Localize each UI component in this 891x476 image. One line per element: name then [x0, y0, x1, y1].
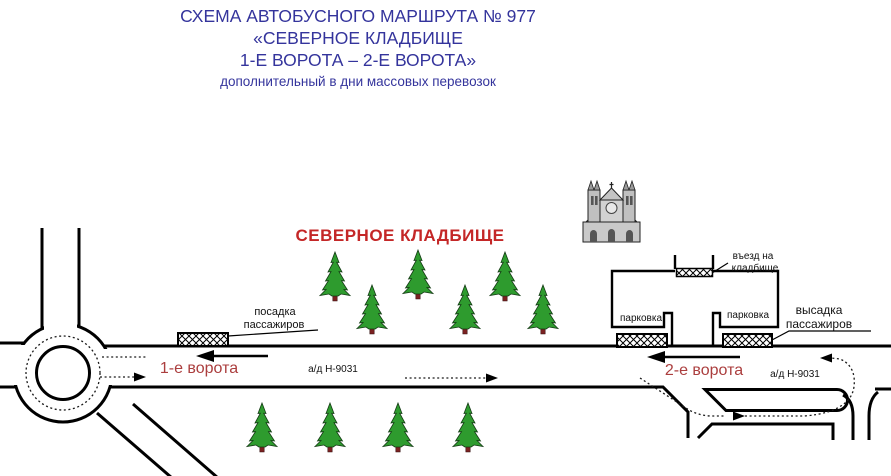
- parking-right-label: парковка: [727, 310, 769, 321]
- boarding-label-line2: пассажиров: [244, 319, 305, 331]
- cemetery-entrance-hatch: [677, 269, 713, 277]
- gate2-arrow-head: [647, 351, 665, 363]
- alighting-platform: [723, 334, 772, 347]
- roundabout-inner-circle: [37, 347, 90, 400]
- cathedral-icon: [583, 181, 640, 242]
- route-arrow-left: [820, 354, 832, 363]
- route-uturn-segment: [745, 358, 854, 416]
- fir-tree-icon: [383, 403, 413, 452]
- gate-posts: [675, 255, 713, 269]
- parking-left-label: парковка: [620, 313, 662, 324]
- alighting-leader-line: [772, 331, 871, 340]
- bus-route-scheme: СХЕМА АВТОБУСНОГО МАРШРУТА № 977 «СЕВЕРН…: [0, 0, 891, 476]
- fir-tree-icon: [247, 403, 277, 452]
- route-arrow-right-2: [486, 374, 498, 383]
- direction-arrows: [196, 350, 740, 363]
- fir-tree-icon: [357, 285, 387, 334]
- fir-tree-icon: [320, 252, 350, 301]
- boarding-platform: [178, 333, 228, 346]
- fir-tree-icon: [453, 403, 483, 452]
- lower-lane-bottom-edge: [698, 424, 833, 440]
- route-arrow-right-1: [134, 373, 146, 382]
- road-name-left-label: а/д Н-9031: [308, 364, 358, 375]
- alighting-label-line1: высадка: [796, 303, 843, 317]
- cemetery-title-label: СЕВЕРНОЕ КЛАДБИЩЕ: [295, 226, 504, 245]
- trees: [247, 250, 558, 452]
- route-map-canvas: СЕВЕРНОЕ КЛАДБИЩЕ 1-е ворота 2-е ворота …: [0, 0, 891, 476]
- gate1-label: 1-е ворота: [160, 360, 238, 377]
- entrance-label-line2: кладбище: [732, 262, 779, 274]
- fir-tree-icon: [315, 403, 345, 452]
- fir-tree-icon: [490, 252, 520, 301]
- turnaround-island: [705, 390, 848, 411]
- fir-tree-icon: [528, 285, 558, 334]
- fir-tree-icon: [450, 285, 480, 334]
- gate2-left-platform: [617, 334, 667, 347]
- fir-tree-icon: [403, 250, 433, 299]
- boarding-label-line1: посадка: [254, 306, 296, 318]
- right-downroad-right-edge: [869, 392, 878, 440]
- route-arrow-right-3: [733, 412, 745, 421]
- roundabout: [0, 226, 216, 476]
- alighting-label-line2: пассажиров: [786, 317, 852, 331]
- entrance-label-line1: въезд на: [733, 251, 774, 262]
- road-name-right-label: а/д Н-9031: [770, 369, 820, 380]
- gate2-label: 2-е ворота: [665, 362, 743, 379]
